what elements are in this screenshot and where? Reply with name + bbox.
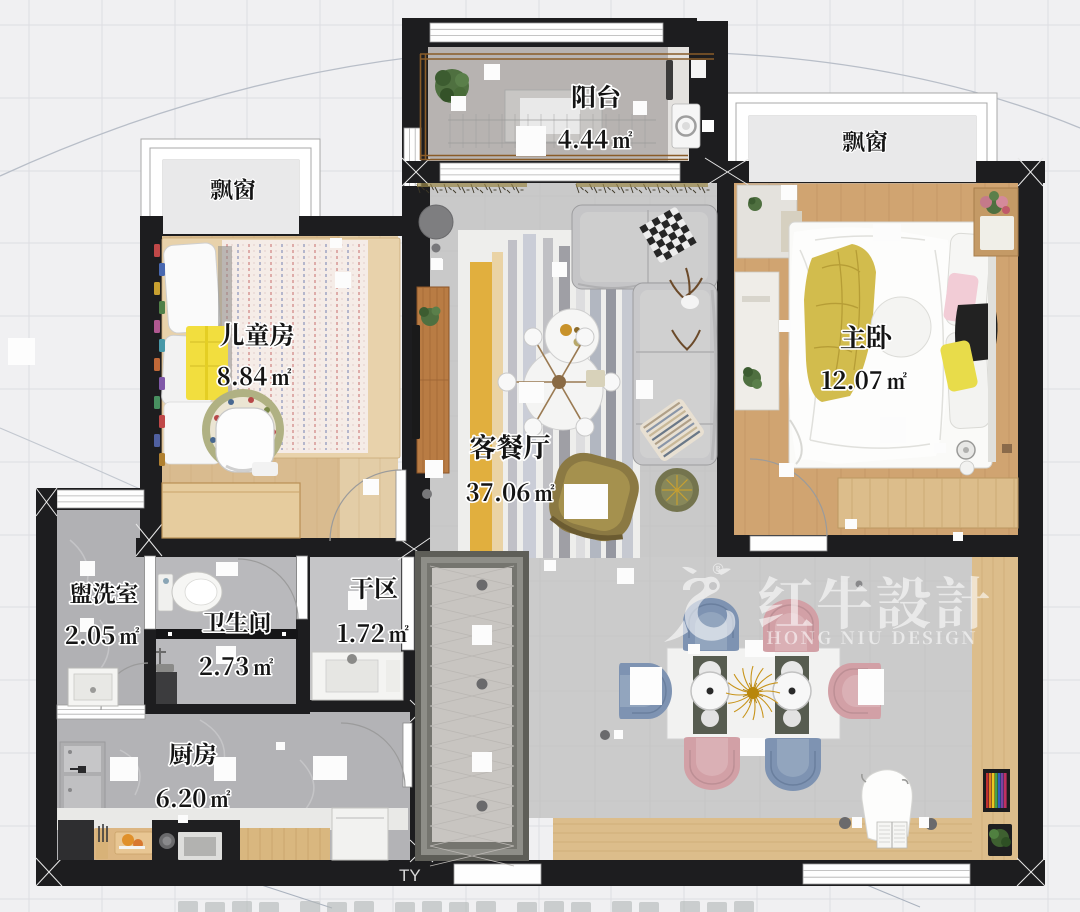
svg-text:TY: TY — [399, 866, 421, 885]
